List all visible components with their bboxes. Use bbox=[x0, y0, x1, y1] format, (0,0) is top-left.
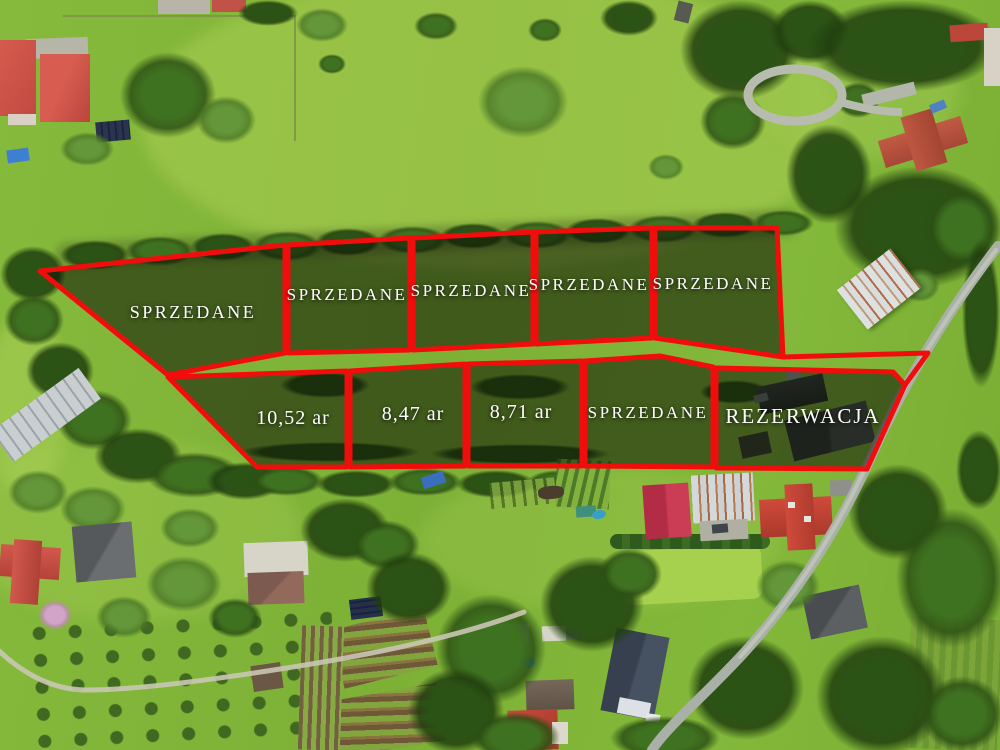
plot-label-4: SPRZEDANE bbox=[529, 275, 650, 294]
plot-label-9: SPRZEDANE bbox=[588, 403, 709, 422]
plot-label-2: SPRZEDANE bbox=[287, 285, 408, 304]
plot-label-7: 8,47 ar bbox=[382, 403, 445, 425]
plot-label-3: SPRZEDANE bbox=[411, 281, 532, 300]
plot-overlay: SPRZEDANE SPRZEDANE SPRZEDANE SPRZEDANE … bbox=[0, 0, 1000, 750]
aerial-photo: SPRZEDANE SPRZEDANE SPRZEDANE SPRZEDANE … bbox=[0, 0, 1000, 750]
plot-label-10: REZERWACJA bbox=[725, 404, 880, 428]
driveway-stub bbox=[840, 102, 902, 112]
plot-label-1: SPRZEDANE bbox=[130, 302, 257, 322]
gravel-path bbox=[0, 612, 524, 690]
plot-label-5: SPRZEDANE bbox=[653, 274, 774, 293]
plot-label-8: 8,71 ar bbox=[490, 401, 553, 423]
plot-label-6: 10,52 ar bbox=[256, 407, 330, 429]
driveway-loop bbox=[748, 69, 842, 121]
